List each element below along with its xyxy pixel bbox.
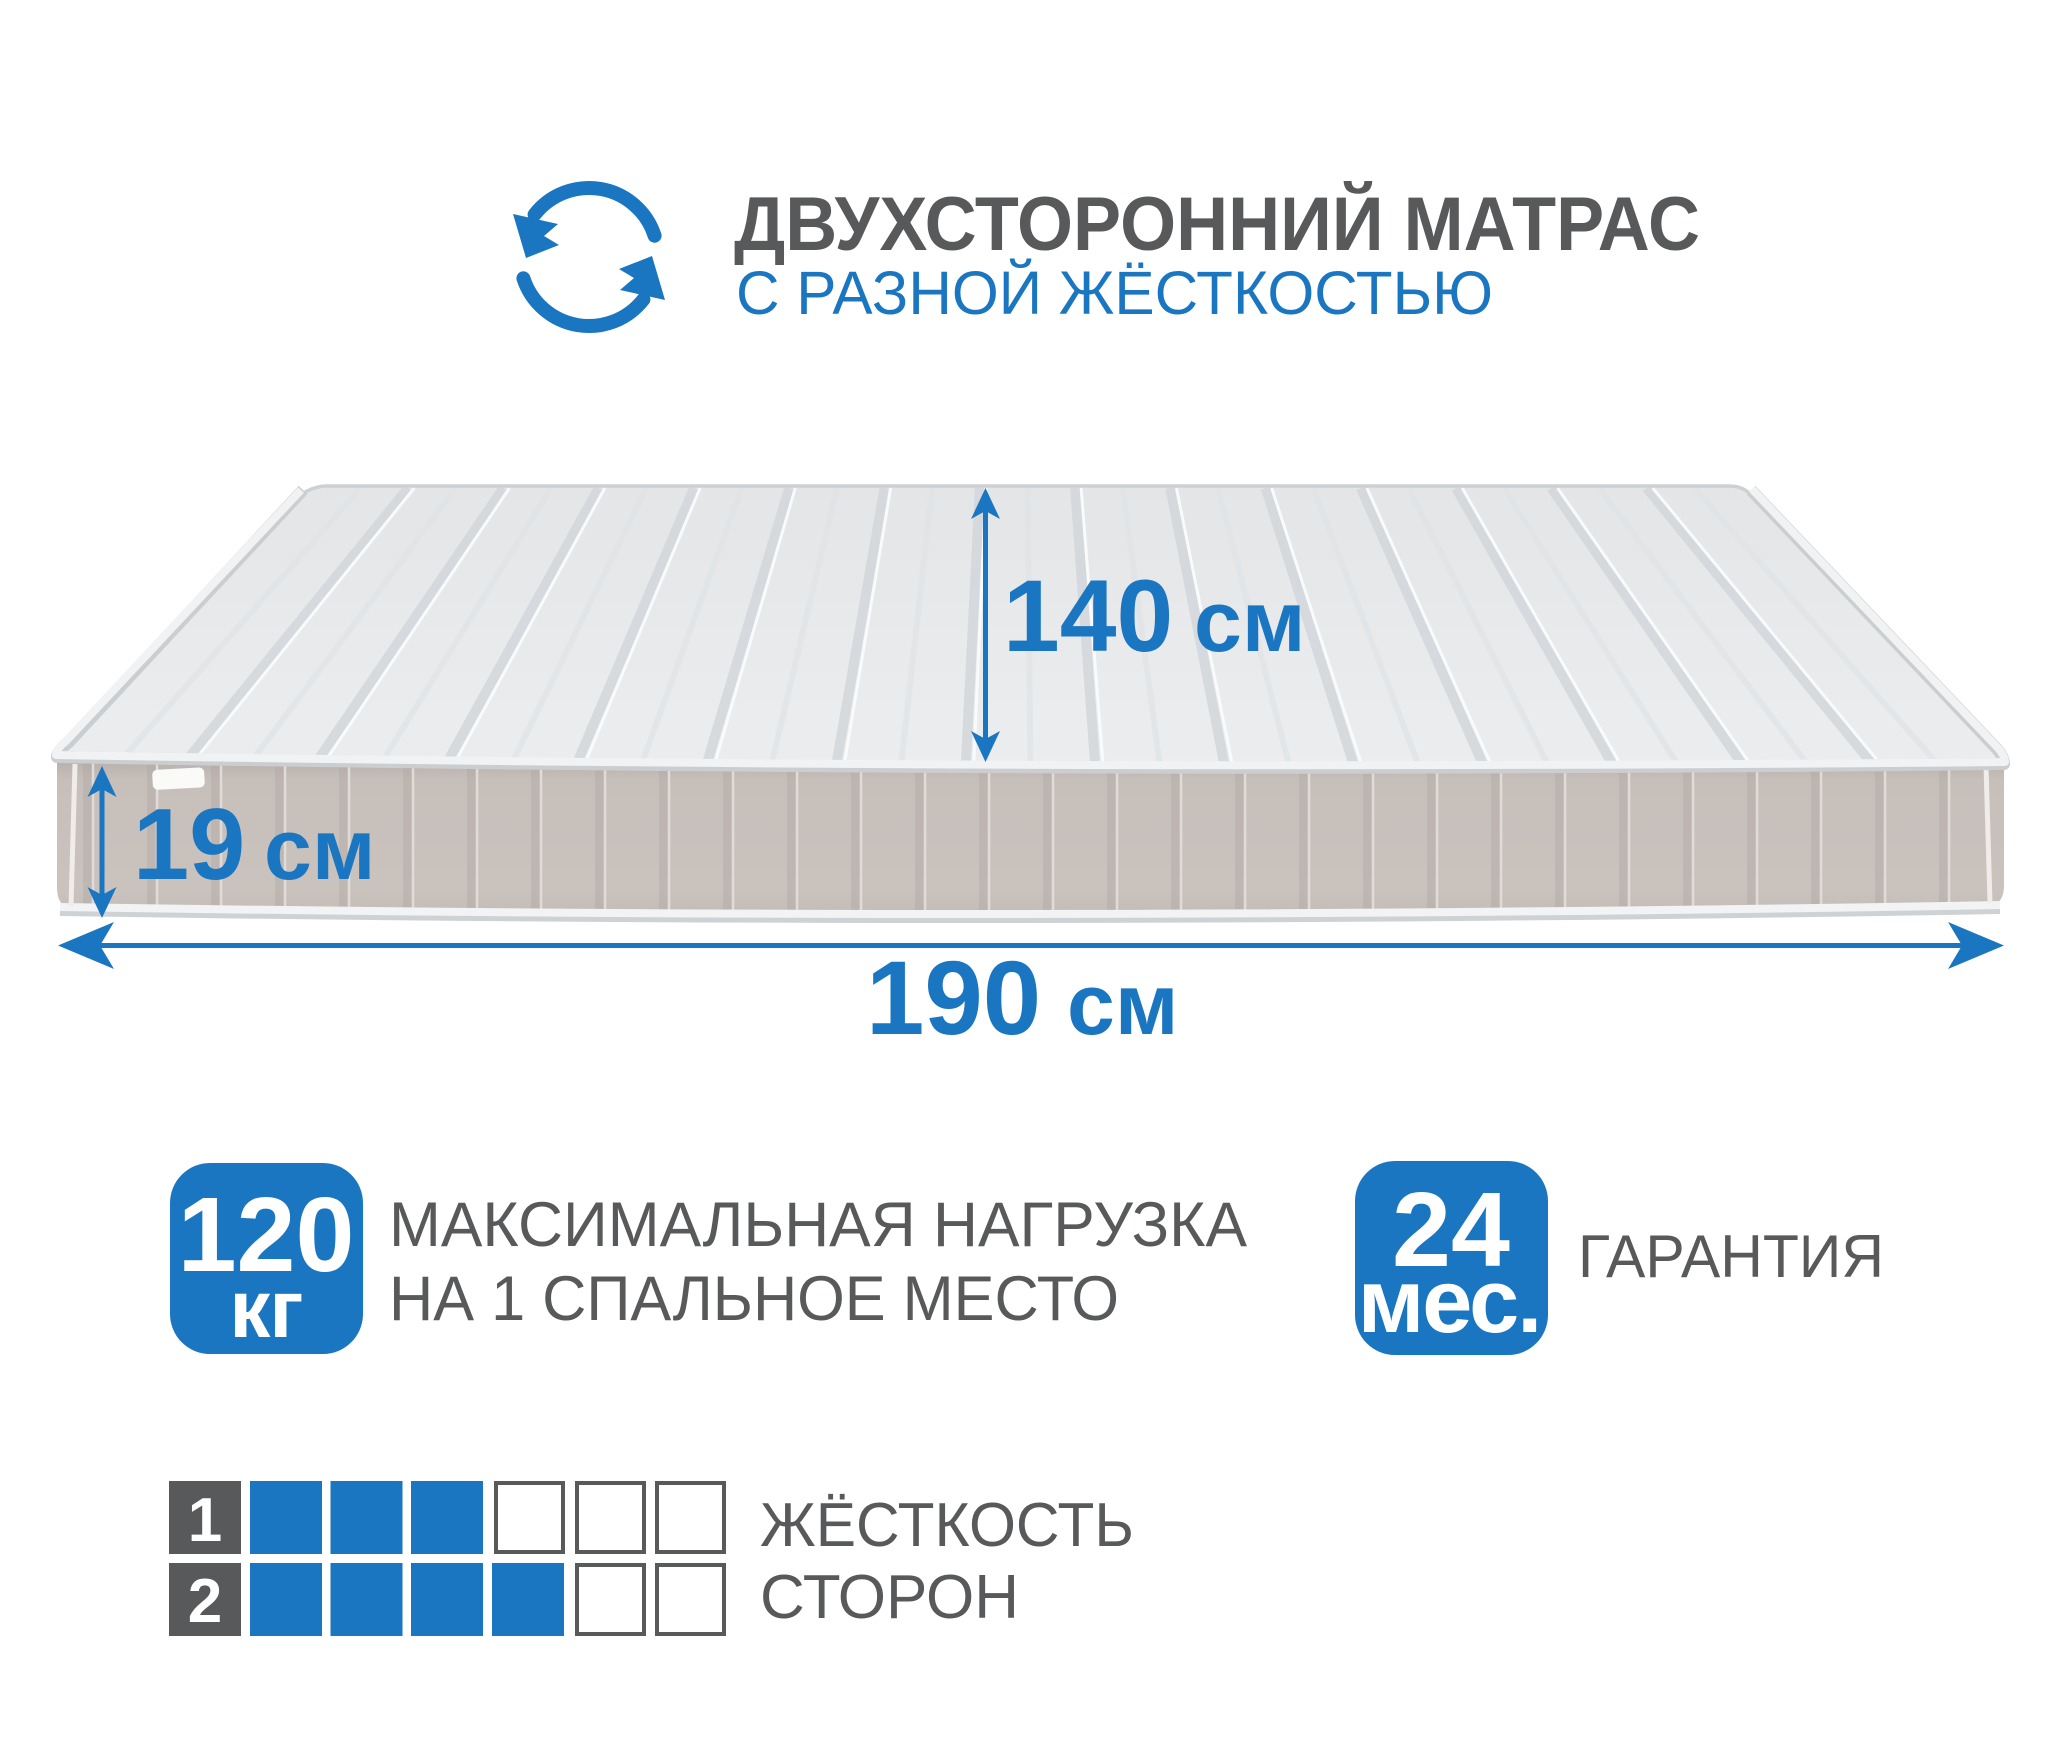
svg-text:см: см xyxy=(264,802,375,898)
svg-text:ДВУХСТОРОННИЙ МАТРАС: ДВУХСТОРОННИЙ МАТРАС xyxy=(734,181,1700,267)
svg-text:см: см xyxy=(1194,574,1305,670)
svg-text:С РАЗНОЙ ЖЁСТКОСТЬЮ: С РАЗНОЙ ЖЁСТКОСТЬЮ xyxy=(736,258,1493,327)
svg-text:кг: кг xyxy=(229,1264,302,1355)
svg-text:2: 2 xyxy=(188,1567,222,1636)
svg-text:МАКСИМАЛЬНАЯ НАГРУЗКА: МАКСИМАЛЬНАЯ НАГРУЗКА xyxy=(389,1190,1247,1260)
svg-text:140: 140 xyxy=(1003,559,1173,673)
svg-text:ГАРАНТИЯ: ГАРАНТИЯ xyxy=(1578,1223,1884,1290)
svg-text:СТОРОН: СТОРОН xyxy=(760,1563,1019,1632)
svg-text:190: 190 xyxy=(866,940,1041,1057)
svg-text:НА 1 СПАЛЬНОЕ МЕСТО: НА 1 СПАЛЬНОЕ МЕСТО xyxy=(389,1264,1119,1334)
svg-text:19: 19 xyxy=(133,789,245,901)
svg-text:см: см xyxy=(1067,957,1178,1053)
svg-text:1: 1 xyxy=(188,1486,222,1555)
svg-text:мес.: мес. xyxy=(1358,1252,1541,1352)
svg-text:ЖЁСТКОСТЬ: ЖЁСТКОСТЬ xyxy=(760,1491,1134,1560)
